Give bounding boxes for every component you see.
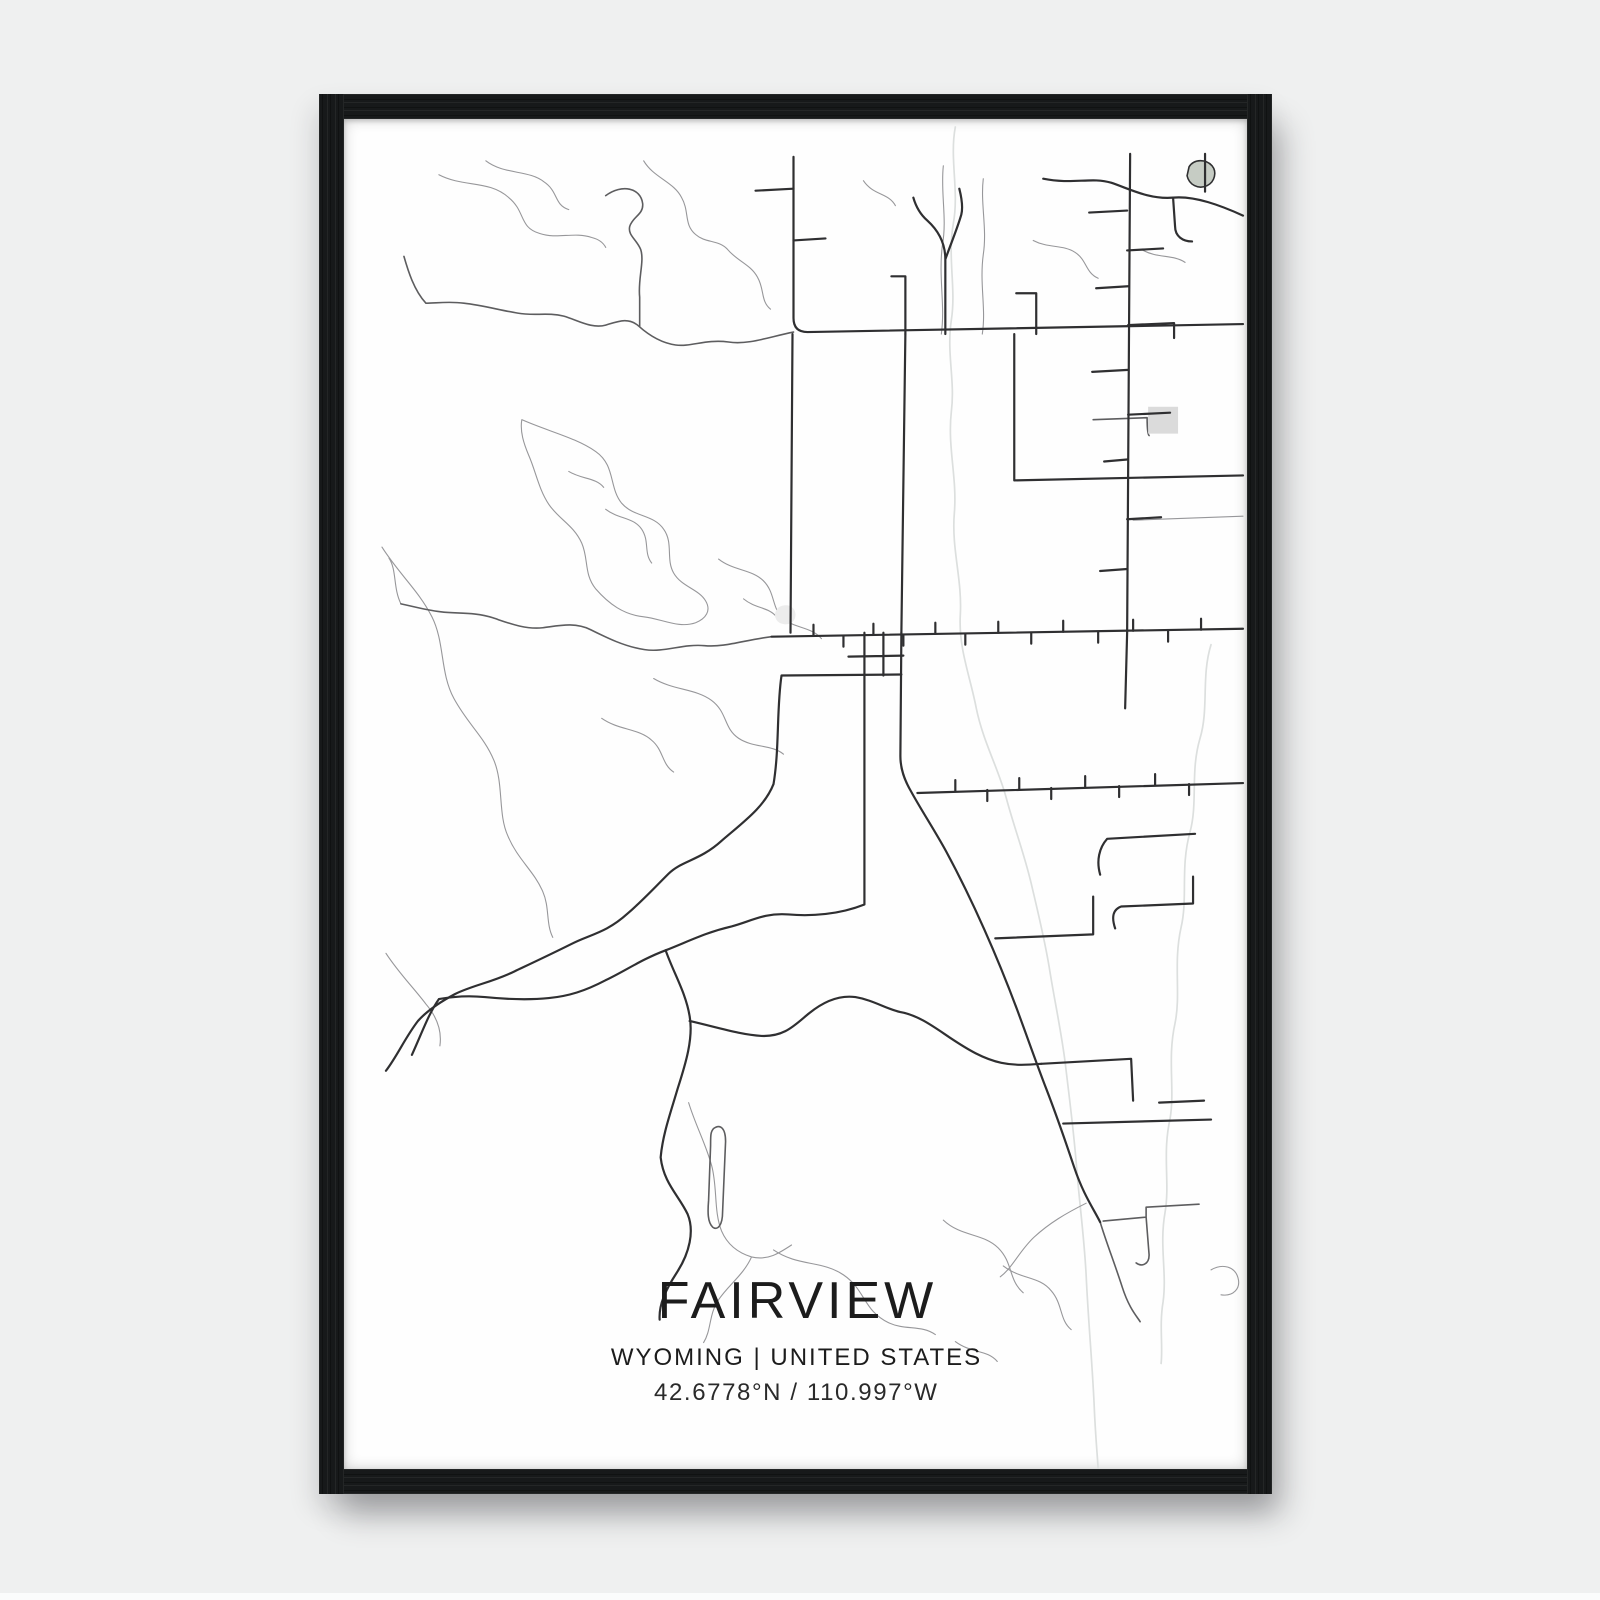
field-block (1148, 407, 1178, 434)
wall-background: FAIRVIEW WYOMING | UNITED STATES 42.6778… (0, 0, 1600, 1600)
floor-strip (0, 1593, 1600, 1600)
poster-frame: FAIRVIEW WYOMING | UNITED STATES 42.6778… (319, 94, 1272, 1494)
areas-layer (775, 161, 1215, 625)
map-poster: FAIRVIEW WYOMING | UNITED STATES 42.6778… (344, 119, 1247, 1469)
pond (1187, 161, 1215, 187)
frame-rail-right (1247, 94, 1272, 1494)
medium-roads-layer (401, 189, 1199, 1322)
minor-roads-layer (382, 161, 1243, 1362)
street-map (344, 119, 1247, 1469)
frame-rail-bottom (319, 1469, 1272, 1494)
major-roads-layer (386, 154, 1243, 1320)
frame-rail-top (319, 94, 1272, 119)
frame-rail-left (319, 94, 344, 1494)
clearing (775, 605, 795, 624)
